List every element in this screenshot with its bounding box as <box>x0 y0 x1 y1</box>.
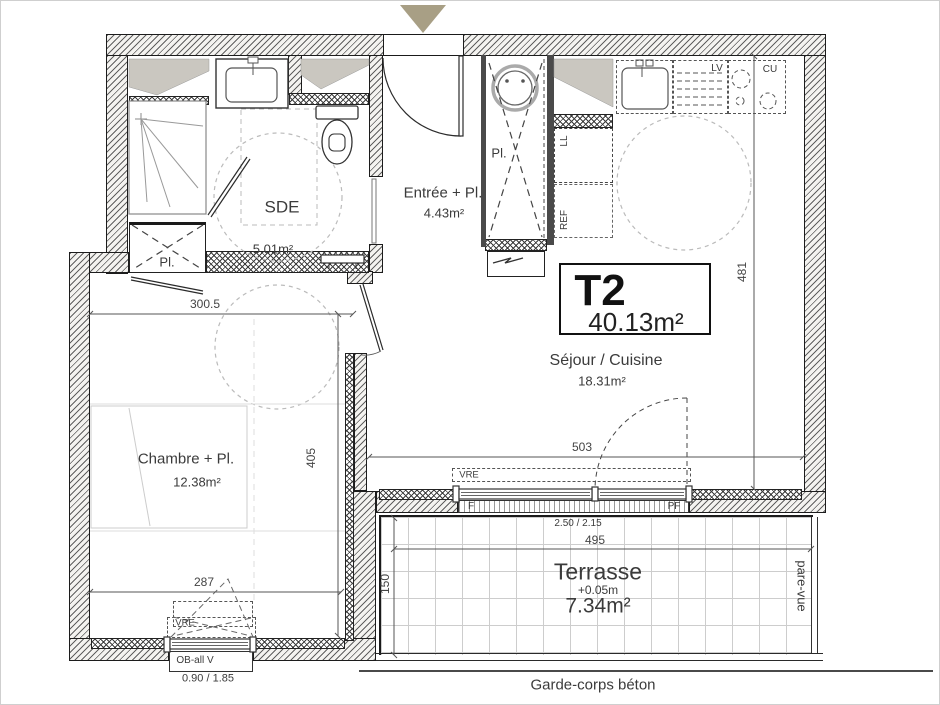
dim-terrasse-width: 495 <box>585 534 605 546</box>
window-label-door: PF <box>668 502 681 512</box>
band-chambre-right-wall <box>345 353 354 641</box>
wall-chambre-right <box>354 353 367 491</box>
vre-sejour-box <box>452 468 691 482</box>
entrance-opening <box>384 34 463 56</box>
sill-sejour-right <box>689 489 802 500</box>
sejour-window-size: 2.50 / 2.15 <box>554 519 601 529</box>
band-shower-top <box>129 96 209 105</box>
entrance-arrow-icon <box>400 5 446 33</box>
dim-chambre-width: 300.5 <box>190 298 220 310</box>
appliance-label-dishwasher: LV <box>711 64 723 74</box>
privacy-screen-label: pare-vue <box>796 560 809 611</box>
room-area-sde: 5.01m² <box>253 243 293 256</box>
wall-sde-right-upper <box>369 55 383 177</box>
wall-right <box>804 55 826 513</box>
closet-label-sde: Pl. <box>159 256 174 269</box>
band-ll-top <box>547 114 613 128</box>
chambre-window-size: 0.90 / 1.85 <box>182 674 234 685</box>
railing-line-upper <box>376 653 823 661</box>
room-area-sejour: 18.31m² <box>578 375 626 388</box>
entrance-door-arc <box>383 58 461 136</box>
chambre-window <box>164 637 256 652</box>
floor-plan: SDE 5.01m² Pl. Entrée + Pl. 4.43m² Pl. S… <box>0 0 940 705</box>
room-label-sde: SDE <box>265 199 300 216</box>
railing-line-lower <box>359 670 933 672</box>
band-wc-back <box>289 93 369 105</box>
sill-chambre-right <box>252 638 345 649</box>
chambre-door <box>360 284 383 355</box>
dim-sejour-width: 503 <box>572 441 592 453</box>
entrance-door-leaf <box>459 56 463 136</box>
duct-shaft-wc <box>301 59 369 89</box>
appliance-label-fridge: REF <box>560 210 570 230</box>
room-label-chambre: Chambre + Pl. <box>138 452 234 467</box>
wall-kitchen-pillar <box>547 55 554 245</box>
wall-sde-right-lower <box>369 244 383 273</box>
duct-shaft-sde <box>129 59 209 95</box>
duct-shaft-kitchen <box>554 59 613 107</box>
wall-left-upper <box>106 55 128 274</box>
sill-chambre-left <box>91 638 167 649</box>
entrance-door <box>383 56 463 136</box>
appliance-label-washing-machine: LL <box>560 135 570 146</box>
dim-chambre-window-width: 287 <box>194 576 214 588</box>
wall-left-lower <box>69 252 90 661</box>
closet-label-entree: Pl. <box>491 147 506 160</box>
chambre-window-type: OB-all V <box>176 656 213 666</box>
wall-entree-closet-left <box>481 55 486 247</box>
chambre-closet-door <box>131 277 203 294</box>
title-block-area: 40.13m² <box>588 309 683 335</box>
room-label-entree: Entrée + Pl. <box>404 186 483 201</box>
room-label-terrasse: Terrasse <box>554 561 642 584</box>
appliance-label-cooktop: CU <box>763 65 777 75</box>
shutter-label-chambre: VRE <box>175 618 195 628</box>
washbasin-icon <box>216 57 288 108</box>
privacy-screen <box>811 517 818 654</box>
dim-sejour-depth: 481 <box>736 262 748 282</box>
room-area-entree: 4.43m² <box>424 207 464 220</box>
shutter-label-sejour: VRE <box>459 470 479 480</box>
band-entree-closet-bottom <box>485 239 547 251</box>
room-area-terrasse: 7.34m² <box>565 596 630 617</box>
kitchen-sink-box <box>616 60 673 114</box>
cooktop-box <box>728 60 786 114</box>
dim-terrasse-depth: 150 <box>379 574 391 594</box>
railing-label: Garde-corps béton <box>530 678 655 693</box>
wall-top-right <box>463 34 826 56</box>
window-label-fixed: F <box>468 502 474 512</box>
sejour-window-sill <box>458 500 689 513</box>
sill-sejour-left <box>379 489 455 500</box>
wall-top-left <box>106 34 384 56</box>
shower-icon <box>129 101 206 214</box>
room-label-sejour: Séjour / Cuisine <box>550 353 663 369</box>
water-heater-icon <box>493 66 537 110</box>
toilet-icon <box>316 106 358 164</box>
sde-sliding-door <box>372 179 376 243</box>
wall-wc-pillar <box>288 55 302 95</box>
electrical-panel-box <box>487 251 545 277</box>
dim-chambre-depth: 405 <box>305 448 317 468</box>
room-area-chambre: 12.38m² <box>173 476 221 489</box>
